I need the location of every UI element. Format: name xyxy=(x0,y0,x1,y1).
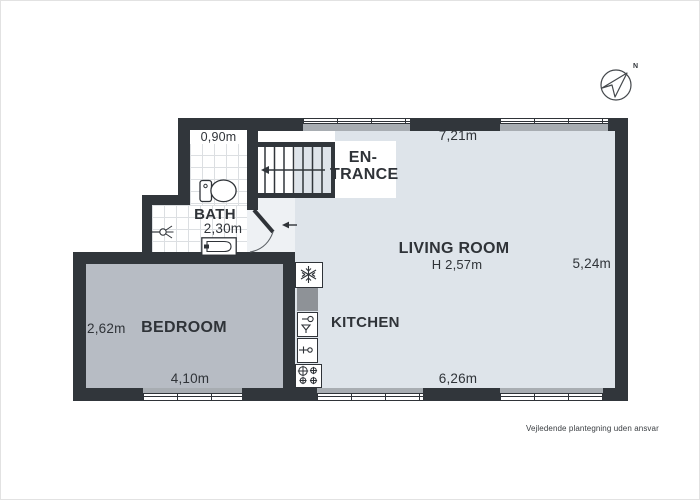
dim-bedroom-bottom-width: 4,10m xyxy=(157,371,223,386)
toilet-icon xyxy=(198,176,238,206)
entrance-label: EN- TRANCE xyxy=(330,149,396,183)
window-bottom-center xyxy=(317,388,423,401)
kitchen-label: KITCHEN xyxy=(331,314,401,331)
entry-direction-arrow-icon xyxy=(280,219,300,231)
dim-living-top-width: 7,21m xyxy=(400,128,516,143)
wall-bath-left-upper xyxy=(178,118,190,205)
entrance-label-line2: TRANCE xyxy=(330,166,396,183)
window-top-right xyxy=(500,118,608,131)
dim-bath-width: 2,30m xyxy=(188,221,258,236)
kitchen-counter xyxy=(297,288,318,311)
wall-right xyxy=(615,118,628,401)
wall-kitchen-bedroom xyxy=(283,252,295,388)
dishwasher-icon xyxy=(297,338,318,363)
floor-plan: N EN- TRANCE BATH LIVING ROOM H 2,57m BE… xyxy=(0,0,700,500)
kitchen-sink-icon xyxy=(297,312,318,337)
wall-bath-right xyxy=(247,131,258,210)
dim-bath-entry-width: 0,90m xyxy=(190,130,247,144)
window-bottom-bedroom xyxy=(143,388,242,401)
shower-icon xyxy=(149,223,175,241)
window-bottom-right xyxy=(500,388,603,401)
living-room-ceiling-height: H 2,57m xyxy=(377,257,537,272)
wall-left-bedroom xyxy=(73,252,86,401)
window-top-left xyxy=(303,118,410,131)
stove-icon xyxy=(295,364,322,388)
bath-sink-icon xyxy=(201,237,237,256)
living-room-label: LIVING ROOM xyxy=(374,240,534,258)
compass-north-label: N xyxy=(633,63,638,70)
disclaimer-text: Vejledende plantegning uden ansvar xyxy=(526,424,659,433)
stairs xyxy=(255,142,335,198)
dim-living-bottom-width: 6,26m xyxy=(425,371,491,386)
fridge-icon xyxy=(295,262,323,288)
entrance-label-line1: EN- xyxy=(330,149,396,166)
dim-bedroom-left-depth: 2,62m xyxy=(87,321,137,336)
compass-icon xyxy=(598,66,642,106)
dim-living-right-depth: 5,24m xyxy=(563,256,611,271)
